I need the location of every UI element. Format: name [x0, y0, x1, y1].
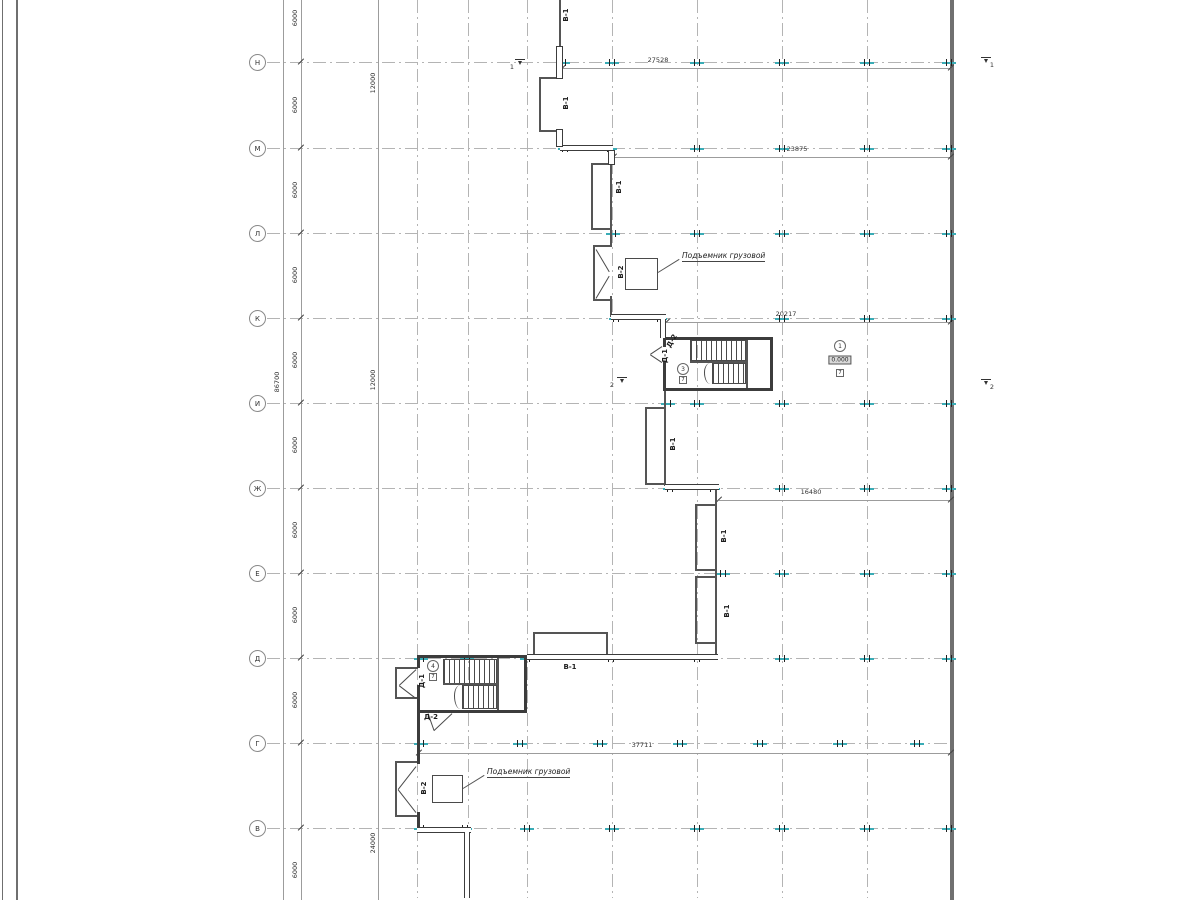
column-tick: [860, 229, 874, 238]
wall-thin: [695, 576, 716, 578]
column-tick: [910, 739, 924, 748]
section-mark-arrow: [984, 59, 988, 63]
grid-column-line: [468, 0, 469, 898]
stair-break-line: [454, 685, 463, 709]
wall-thin: [645, 483, 666, 485]
wall-thin: [593, 245, 611, 247]
dimension-value: 12000: [369, 73, 377, 94]
wall-double: [665, 484, 719, 490]
section-number: 2: [990, 383, 994, 391]
column-tick: [605, 58, 619, 67]
column-tick: [690, 58, 704, 67]
mark-label: В-1: [615, 180, 623, 193]
floor-type-tag: 7: [679, 376, 687, 384]
wall-thin: [593, 245, 595, 301]
wall-thick: [417, 712, 420, 764]
door-swing-line: [596, 276, 610, 299]
mark-label: В-1: [562, 8, 570, 21]
dimension-value: 6000: [291, 862, 299, 879]
wall-thick: [417, 685, 420, 713]
stair-landing-line: [443, 683, 497, 685]
wall-double: [660, 319, 666, 338]
grid-column-line: [782, 0, 783, 898]
column-tick: [775, 58, 789, 67]
wall-thin: [695, 569, 716, 571]
wall-thick: [770, 337, 773, 391]
wall-thin: [591, 163, 593, 230]
mark-label: В-2: [617, 265, 625, 278]
window-unit: [556, 129, 563, 147]
column-tick: [690, 144, 704, 153]
wall-thin: [610, 163, 612, 247]
room-number-circle: 3: [677, 363, 689, 375]
sheet-frame-line: [16, 0, 18, 900]
grid-row-line: [267, 488, 951, 489]
wall-thin: [695, 642, 716, 644]
column-tick: [775, 824, 789, 833]
axis-circle: Д: [249, 650, 266, 667]
wall-double: [417, 827, 471, 833]
dimension-value: 6000: [291, 437, 299, 454]
section-number: 1: [510, 63, 514, 71]
axis-circle: Ж: [249, 480, 266, 497]
floor-type-tag: 7: [836, 369, 844, 377]
column-tick: [690, 229, 704, 238]
mark-label: Д-1: [418, 674, 426, 688]
dimension-value: 6000: [291, 352, 299, 369]
dimension-value: 6000: [291, 267, 299, 284]
wall-thin: [695, 504, 697, 571]
column-tick: [690, 824, 704, 833]
grid-row-line: [267, 403, 951, 404]
sheet-frame-line: [2, 0, 3, 900]
grid-row-line: [267, 743, 951, 744]
column-tick: [593, 739, 607, 748]
column-tick: [860, 824, 874, 833]
mark-label: Д-2: [424, 713, 438, 721]
wall-thin: [695, 576, 697, 644]
room-number-circle: 1: [834, 340, 846, 352]
dimension-chain-line: [301, 0, 302, 900]
wall-double: [527, 654, 718, 660]
dimension-line: [614, 157, 951, 158]
wall-thin: [533, 632, 535, 656]
dimension-value: 16480: [801, 488, 822, 496]
door-swing-line: [398, 789, 417, 813]
room-number-circle: 4: [427, 660, 439, 672]
wall-thin: [539, 77, 541, 132]
dimension-line: [419, 753, 951, 754]
dimension-value: 86700: [273, 372, 281, 393]
grid-column-line: [867, 0, 868, 898]
column-tick: [860, 144, 874, 153]
column-tick: [775, 399, 789, 408]
wall-thin: [591, 228, 612, 230]
wall-thin: [559, 0, 561, 47]
freight-lift-label: Подъемник грузовой: [487, 767, 570, 778]
column-tick: [775, 484, 789, 493]
column-tick: [942, 58, 956, 67]
window-unit: [608, 150, 615, 165]
column-tick: [673, 739, 687, 748]
column-tick: [775, 144, 789, 153]
stair-flight: [443, 659, 497, 684]
column-tick: [690, 399, 704, 408]
dimension-value: 6000: [291, 97, 299, 114]
freight-lift-box: [432, 775, 463, 803]
dimension-value: 23875: [787, 145, 808, 153]
mark-label: Д-1: [661, 349, 669, 363]
column-tick: [513, 739, 527, 748]
column-tick: [605, 824, 619, 833]
axis-circle: Н: [249, 54, 266, 71]
wall-thin: [533, 632, 608, 634]
dimension-value: 6000: [291, 692, 299, 709]
wall-thin: [593, 299, 611, 301]
window-unit: [556, 46, 563, 79]
dimension-value: 6000: [291, 10, 299, 27]
column-tick: [860, 654, 874, 663]
dimension-chain-line: [283, 0, 284, 900]
wall-thin: [645, 407, 666, 409]
column-tick: [860, 484, 874, 493]
leader-line: [463, 775, 485, 789]
dimension-line: [667, 322, 951, 323]
stair-break-line: [704, 363, 713, 384]
column-tick: [775, 569, 789, 578]
door-swing-line: [398, 766, 417, 790]
axis-circle: И: [249, 395, 266, 412]
wall-thin: [695, 504, 716, 506]
stair-landing-line: [690, 361, 746, 363]
door-swing-line: [399, 669, 417, 686]
wall-thin: [746, 339, 748, 390]
wall-thin: [664, 391, 666, 486]
building-right-edge-wall: [950, 0, 954, 900]
dimension-value: 6000: [291, 607, 299, 624]
column-tick: [860, 58, 874, 67]
grid-column-line: [527, 0, 528, 898]
wall-thin: [606, 632, 608, 656]
column-tick: [942, 569, 956, 578]
dimension-value: 24000: [369, 833, 377, 854]
column-tick: [833, 739, 847, 748]
dimension-value: 12000: [369, 370, 377, 391]
column-tick: [716, 569, 730, 578]
floor-type-tag: 7: [429, 673, 437, 681]
axis-circle: В: [249, 820, 266, 837]
column-tick: [775, 314, 789, 323]
door-swing-line: [596, 249, 610, 272]
column-tick: [775, 229, 789, 238]
section-number: 2: [610, 381, 614, 389]
grid-row-line: [267, 573, 951, 574]
dimension-chain-line: [378, 0, 379, 900]
dimension-value: 37711: [632, 741, 653, 749]
wall-thin: [395, 815, 418, 817]
section-number: 1: [990, 61, 994, 69]
section-mark-arrow: [984, 381, 988, 385]
axis-circle: Л: [249, 225, 266, 242]
column-tick: [942, 484, 956, 493]
wall-thin: [395, 761, 397, 817]
column-tick: [942, 144, 956, 153]
column-tick: [942, 399, 956, 408]
mark-label: В-1: [562, 96, 570, 109]
mark-label: Д-2: [665, 333, 679, 349]
stair-flight: [712, 363, 746, 384]
stair-flight: [690, 340, 746, 361]
dimension-value: 6000: [291, 522, 299, 539]
freight-lift-box: [625, 258, 658, 290]
wall-thick: [524, 655, 527, 713]
wall-thin: [497, 658, 499, 711]
column-tick: [520, 824, 534, 833]
axis-circle: Г: [249, 735, 266, 752]
dimension-line: [563, 68, 951, 69]
stair-flight: [462, 685, 497, 709]
column-tick: [942, 654, 956, 663]
elevation-mark: 0.000: [828, 356, 851, 365]
mark-label: В-1: [723, 604, 731, 617]
wall-thin: [645, 407, 647, 485]
dimension-line: [719, 500, 951, 501]
dimension-value: 6000: [291, 182, 299, 199]
wall-thick: [663, 361, 666, 391]
wall-thin: [395, 761, 418, 763]
wall-double: [464, 832, 470, 898]
freight-lift-label: Подъемник грузовой: [682, 251, 765, 262]
section-mark-arrow: [620, 379, 624, 383]
column-tick: [753, 739, 767, 748]
wall-thick: [417, 655, 420, 668]
section-mark-arrow: [518, 61, 522, 65]
wall-double: [611, 314, 666, 320]
wall-double: [560, 145, 613, 151]
wall-thin: [715, 490, 717, 656]
dimension-value: 27528: [648, 56, 669, 64]
grid-column-line: [612, 0, 613, 898]
axis-circle: К: [249, 310, 266, 327]
column-tick: [860, 314, 874, 323]
grid-column-line: [697, 0, 698, 898]
column-tick: [775, 654, 789, 663]
column-tick: [942, 229, 956, 238]
wall-thick: [665, 388, 773, 391]
wall-thin: [395, 667, 397, 699]
column-tick: [860, 399, 874, 408]
mark-label: В-1: [563, 663, 576, 671]
axis-circle: М: [249, 140, 266, 157]
axis-circle: Е: [249, 565, 266, 582]
mark-label: В-2: [420, 781, 428, 794]
mark-label: В-1: [669, 437, 677, 450]
leader-line: [658, 259, 680, 273]
floor-plan-canvas: НМЛКИЖЕДГВ600060006000600060006000600060…: [0, 0, 1200, 900]
column-tick: [942, 314, 956, 323]
wall-thick: [417, 655, 527, 658]
mark-label: В-1: [720, 529, 728, 542]
column-tick: [606, 229, 620, 238]
column-tick: [942, 824, 956, 833]
column-tick: [860, 569, 874, 578]
